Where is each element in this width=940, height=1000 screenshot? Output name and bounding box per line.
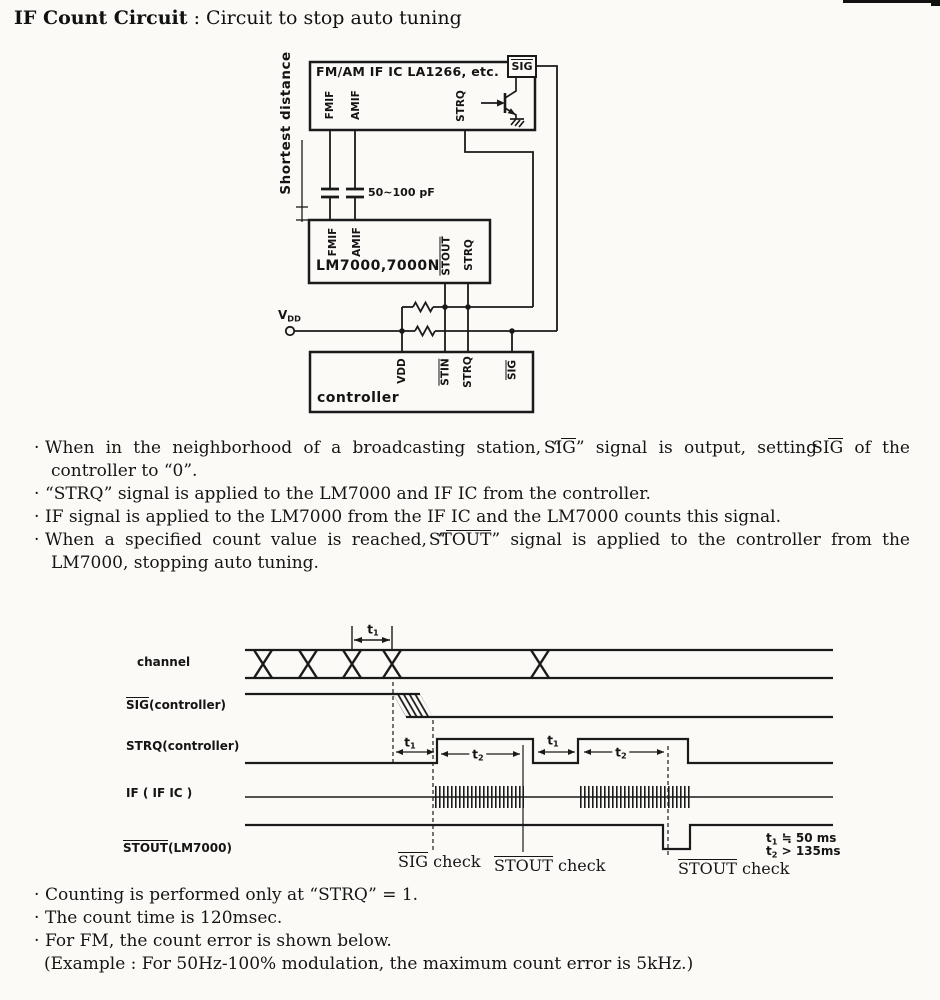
strq-waveform xyxy=(245,739,833,763)
sig-check-label: SIG check xyxy=(398,852,481,871)
note-sig-output: ·When in the neighborhood of a broadcast… xyxy=(34,437,910,483)
capacitor-symbols xyxy=(321,189,364,197)
note-stout-applied: ·When a specified count value is reached… xyxy=(34,529,910,575)
t2-label-strq-2: t2 xyxy=(612,745,629,760)
timing-row-strq: STRQ(controller) xyxy=(126,739,239,753)
controller-vdd-pin-label: VDD xyxy=(396,358,408,384)
channel-waveform xyxy=(245,650,833,678)
timing-row-channel: channel xyxy=(137,655,190,669)
stout-check-label-2: STOUT check xyxy=(678,859,789,878)
page-title-rest: : Circuit to stop auto tuning xyxy=(188,7,462,29)
t1-label-strq-1: t1 xyxy=(404,735,415,750)
page-title: IF Count Circuit : Circuit to stop auto … xyxy=(14,7,462,29)
note-fm-count-error: ·For FM, the count error is shown below. xyxy=(34,930,910,953)
notes-bottom: ·Counting is performed only at “STRQ” = … xyxy=(34,884,910,976)
controller-label: controller xyxy=(317,390,399,406)
lm-strq-pin-label: STRQ xyxy=(463,239,475,271)
dimension-line xyxy=(296,140,308,222)
note-example: (Example : For 50Hz-100% modulation, the… xyxy=(34,953,910,976)
lm-stout-pin-label: STOUT xyxy=(439,236,452,275)
strq-wire xyxy=(465,130,533,307)
pin-wires xyxy=(402,283,512,352)
guide-lines xyxy=(393,682,668,857)
if-ic-fmif-pin-label: FMIF xyxy=(324,91,336,120)
vdd-terminal xyxy=(286,327,294,335)
timing-diagram xyxy=(245,626,833,857)
capacitor-value-label: 50~100 pF xyxy=(368,186,435,199)
t2-value-note: t2 > 135ms xyxy=(766,844,841,859)
note-count-time: ·The count time is 120msec. xyxy=(34,907,910,930)
sig-pin-label: SIG xyxy=(509,59,535,73)
datasheet-page: IF Count Circuit : Circuit to stop auto … xyxy=(0,0,940,1000)
sig-pullup-resistor xyxy=(294,327,557,336)
timing-row-if: IF ( IF IC ) xyxy=(126,786,192,800)
sig-waveform xyxy=(245,694,833,717)
timing-row-sig: SIG(controller) xyxy=(126,697,226,712)
note-if-counted: ·IF signal is applied to the LM7000 from… xyxy=(34,506,910,529)
if-wires xyxy=(330,130,355,220)
t2-label-strq-1: t2 xyxy=(469,747,486,762)
if-ic-label: FM/AM IF IC LA1266, etc. xyxy=(316,64,499,79)
lm7000-label: LM7000,7000N xyxy=(316,258,440,274)
t1-label-strq-2: t1 xyxy=(547,733,558,748)
scan-artifact-line xyxy=(843,0,940,6)
lm-amif-pin-label: AMIF xyxy=(351,227,363,257)
stout-check-label-1: STOUT check xyxy=(494,856,605,875)
controller-stin-pin-label: STIN xyxy=(438,358,451,385)
sig-wire xyxy=(536,66,557,331)
if-ic-strq-pin-label: STRQ xyxy=(455,90,467,122)
transistor-symbol xyxy=(481,78,524,127)
notes-top: ·When in the neighborhood of a broadcast… xyxy=(34,437,910,575)
note-strq-applied: ·“STRQ” signal is applied to the LM7000 … xyxy=(34,483,910,506)
if-ic-amif-pin-label: AMIF xyxy=(350,90,362,120)
controller-strq-pin-label: STRQ xyxy=(462,356,474,388)
timing-row-stout: STOUT(LM7000) xyxy=(123,840,232,855)
lm-fmif-pin-label: FMIF xyxy=(327,228,339,257)
page-title-bold: IF Count Circuit xyxy=(14,7,188,29)
stout-waveform xyxy=(245,825,833,849)
note-counting-strq: ·Counting is performed only at “STRQ” = … xyxy=(34,884,910,907)
shortest-distance-label: Shortest distance xyxy=(278,51,294,194)
t1-label-channel: t1 xyxy=(367,622,378,637)
vdd-label: VDD xyxy=(278,308,301,323)
controller-sig-pin-label: SIG xyxy=(505,360,518,380)
